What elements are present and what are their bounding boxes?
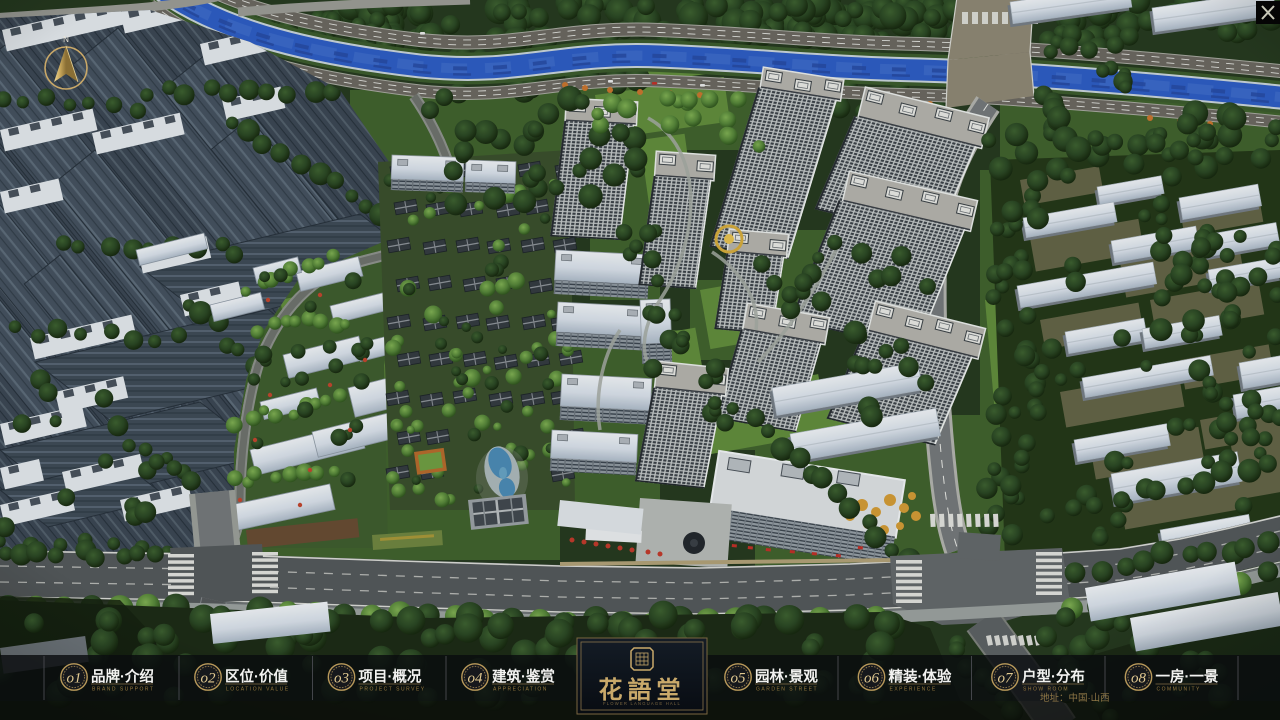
svg-text:BRAND SUPPORT: BRAND SUPPORT [92,687,154,693]
svg-text:LOCATION VALUE: LOCATION VALUE [226,687,290,693]
svg-text:APPRECIATION: APPRECIATION [493,687,548,693]
svg-text:区位·价值: 区位·价值 [225,668,288,686]
svg-text:花語堂: 花語堂 [599,676,686,704]
svg-text:o2: o2 [201,671,217,687]
svg-text:N: N [63,35,69,44]
svg-text:o6: o6 [864,671,880,687]
svg-text:品牌·介绍: 品牌·介绍 [91,668,154,686]
svg-text:o1: o1 [67,671,82,687]
svg-text:SHOW ROOM: SHOW ROOM [1023,687,1069,693]
svg-text:PROJECT SURVEY: PROJECT SURVEY [360,687,426,693]
svg-text:精装·体验: 精装·体验 [889,668,952,686]
svg-text:园林·景观: 园林·景观 [755,668,818,686]
svg-text:o5: o5 [731,671,747,687]
svg-text:EXPERIENCE: EXPERIENCE [890,687,937,693]
svg-text:o3: o3 [334,671,349,687]
svg-text:一房·一景: 一房·一景 [1156,668,1219,686]
svg-text:GARDEN STREET: GARDEN STREET [756,687,818,693]
svg-text:FLOWER LANGUAGE HALL: FLOWER LANGUAGE HALL [603,701,681,706]
svg-text:o7: o7 [998,671,1015,687]
svg-text:COMMUNITY: COMMUNITY [1157,687,1201,693]
svg-text:户型·分布: 户型·分布 [1022,668,1085,686]
svg-text:o8: o8 [1131,671,1147,687]
svg-text:建筑·鉴赏: 建筑·鉴赏 [492,668,555,686]
svg-text:o4: o4 [468,671,484,687]
svg-text:地址：中国·山西: 地址：中国·山西 [1040,692,1110,704]
svg-text:项目·概况: 项目·概况 [359,668,422,686]
